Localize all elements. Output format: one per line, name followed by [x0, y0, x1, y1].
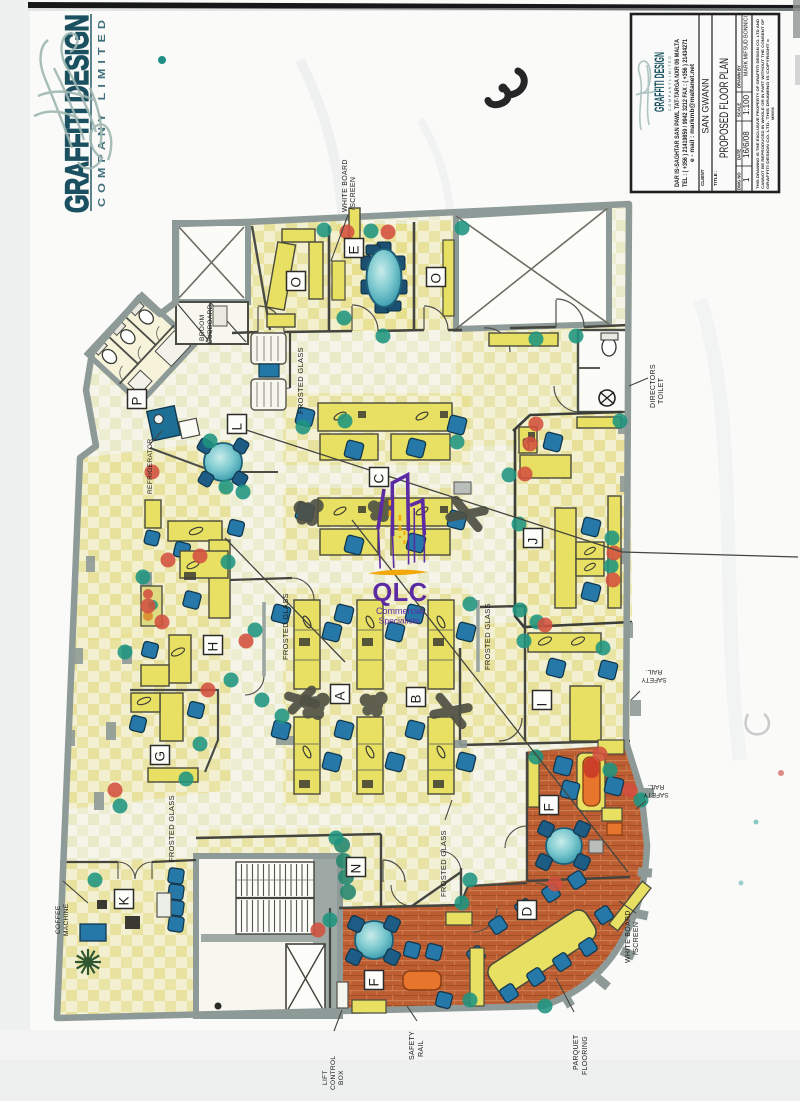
svg-text:FROSTED GLASS: FROSTED GLASS — [167, 795, 176, 862]
svg-text:FROSTED GLASS: FROSTED GLASS — [439, 830, 448, 897]
svg-text:16/6/08: 16/6/08 — [742, 131, 751, 158]
svg-text:J: J — [526, 538, 541, 545]
svg-text:WHITE BOARD: WHITE BOARD — [625, 910, 632, 963]
svg-text:RAIL: RAIL — [418, 1040, 425, 1057]
svg-text:C O M P A N Y L I M I T E D: C O M P A N Y L I M I T E D — [668, 54, 672, 111]
svg-text:BROOM: BROOM — [199, 315, 206, 341]
svg-text:A: A — [333, 691, 348, 700]
svg-text:LIFT: LIFT — [322, 1070, 329, 1085]
svg-text:DIRECTORS: DIRECTORS — [650, 364, 657, 408]
svg-text:RAIL.: RAIL. — [648, 783, 664, 790]
svg-text:O: O — [289, 277, 304, 288]
svg-text:SAFETY: SAFETY — [409, 1031, 416, 1060]
svg-text:e - mail : markmb@maltanet.net: e - mail : markmb@maltanet.net — [689, 64, 696, 162]
svg-text:SAFETY: SAFETY — [641, 676, 667, 683]
svg-text:TEL : ( +356 ) 21419859 / 9942: TEL : ( +356 ) 21419859 / 9942 3212 FAX … — [682, 39, 689, 187]
svg-text:WHITE BOARD: WHITE BOARD — [342, 159, 349, 212]
svg-text:TITLE :: TITLE : — [713, 170, 718, 186]
svg-text:N: N — [349, 864, 364, 874]
svg-text:O: O — [429, 273, 444, 284]
svg-text:DRAWN BY: DRAWN BY — [737, 65, 742, 88]
svg-text:I: I — [535, 703, 550, 707]
svg-text:L: L — [230, 423, 245, 431]
svg-text:MMVIII: MMVIII — [770, 107, 775, 120]
svg-text:/SCREEN: /SCREEN — [633, 922, 640, 955]
svg-text:CLIENT: CLIENT — [700, 169, 705, 186]
svg-text:1:100: 1:100 — [742, 94, 751, 115]
svg-text:BOX: BOX — [338, 1070, 345, 1085]
svg-text:E: E — [347, 245, 362, 254]
svg-text:COFFEE: COFFEE — [55, 905, 62, 934]
svg-text:MARK MIFSUD BONNICI: MARK MIFSUD BONNICI — [744, 16, 750, 76]
svg-text:TOILET: TOILET — [658, 377, 665, 404]
svg-text:G: G — [153, 751, 168, 762]
svg-text:C: C — [372, 474, 387, 484]
svg-text:1: 1 — [742, 177, 751, 182]
svg-text:GRAFFITI DESIGN: GRAFFITI DESIGN — [651, 52, 667, 112]
svg-text:SAN GWANN: SAN GWANN — [701, 78, 711, 133]
svg-text:SCALE: SCALE — [737, 103, 742, 117]
svg-text:DATE: DATE — [737, 149, 742, 160]
svg-text:CONTROL: CONTROL — [330, 1056, 337, 1090]
svg-text:P: P — [130, 396, 145, 405]
svg-text:QLC: QLC — [372, 579, 427, 607]
svg-text:FROSTED GLASS: FROSTED GLASS — [281, 593, 290, 660]
svg-text:FROSTED GLASS: FROSTED GLASS — [483, 603, 492, 670]
svg-text:D: D — [520, 907, 535, 917]
svg-text:Specialists: Specialists — [379, 616, 420, 626]
svg-text:REFRIGERATOR: REFRIGERATOR — [147, 439, 154, 494]
svg-text:DAR IS-SAGHTAR SAN PAWL TAT-: DAR IS-SAGHTAR SAN PAWL TAT-TARGA NXR 06… — [674, 39, 681, 187]
svg-text:/SCREEN: /SCREEN — [350, 177, 357, 210]
svg-text:MACHINE: MACHINE — [63, 903, 70, 936]
svg-text:B: B — [409, 694, 424, 703]
svg-text:H: H — [206, 642, 221, 652]
svg-text:RAIL.: RAIL. — [646, 668, 662, 675]
svg-text:F: F — [542, 803, 557, 811]
svg-text:DWG NO: DWG NO — [737, 172, 742, 190]
svg-text:PARQUET: PARQUET — [573, 1034, 580, 1070]
svg-text:FLOORING: FLOORING — [582, 1036, 589, 1075]
svg-text:Commercial: Commercial — [376, 606, 424, 616]
svg-text:PROPOSED FLOOR PLAN: PROPOSED FLOOR PLAN — [717, 58, 731, 158]
svg-text:SAFETY: SAFETY — [643, 791, 669, 798]
svg-text:F: F — [367, 978, 382, 986]
svg-text:CUPBOARD: CUPBOARD — [207, 304, 214, 344]
svg-text:K: K — [117, 896, 132, 905]
svg-text:FROSTED GLASS: FROSTED GLASS — [296, 347, 305, 414]
